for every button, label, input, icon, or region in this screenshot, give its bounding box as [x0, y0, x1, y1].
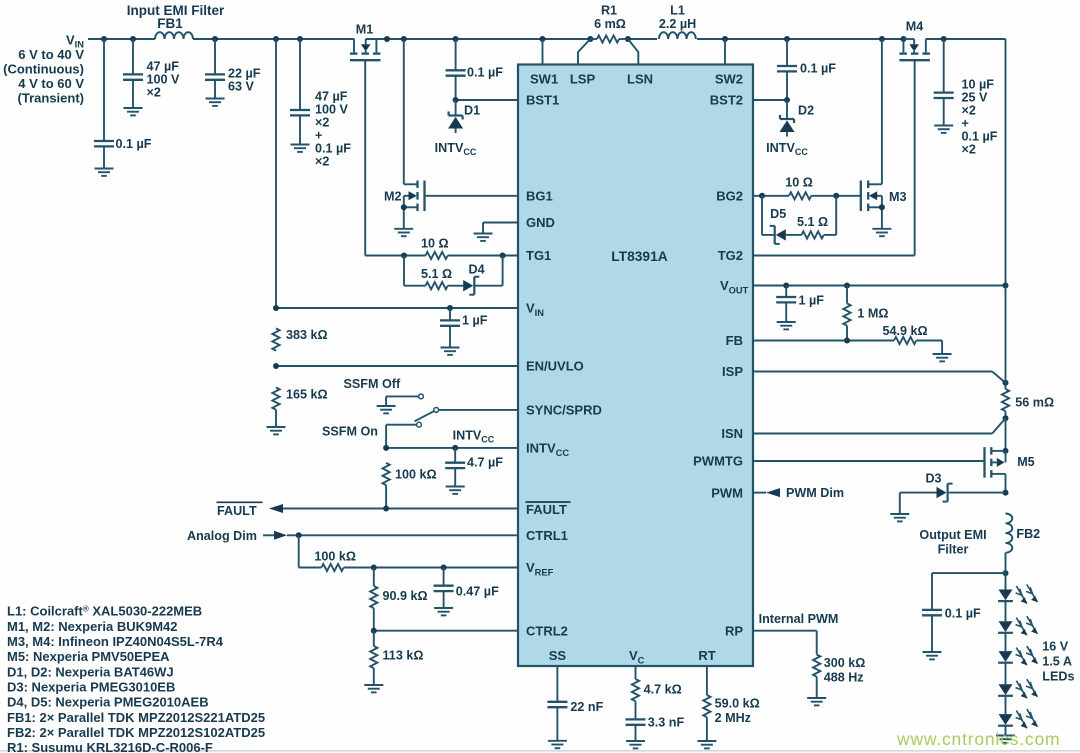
svg-text:GND: GND [526, 215, 555, 230]
svg-text:SSFM Off: SSFM Off [344, 377, 401, 391]
svg-text:Analog Dim: Analog Dim [187, 529, 257, 543]
svg-text:(Transient): (Transient) [18, 90, 84, 105]
svg-text:10 Ω: 10 Ω [785, 176, 813, 190]
svg-text:www.cntronics.com: www.cntronics.com [896, 729, 1060, 749]
svg-text:16 V: 16 V [1042, 640, 1069, 654]
svg-text:L1: Coilcraft® XAL5030-222MEB: L1: Coilcraft® XAL5030-222MEB [7, 604, 202, 619]
svg-text:25 V: 25 V [962, 91, 989, 105]
svg-text:SSFM On: SSFM On [322, 425, 378, 439]
svg-text:LSN: LSN [627, 72, 653, 87]
svg-text:M3: M3 [889, 190, 907, 204]
svg-text:47 µF: 47 µF [147, 60, 180, 74]
svg-text:D1: D1 [464, 104, 480, 118]
svg-text:×2: ×2 [962, 104, 976, 118]
svg-text:M5: Nexperia PMV50EPEA: M5: Nexperia PMV50EPEA [7, 649, 170, 664]
svg-text:FB1: 2× Parallel TDK MPZ2012S2: FB1: 2× Parallel TDK MPZ2012S221ATD25 [7, 710, 265, 725]
svg-text:3.3 nF: 3.3 nF [648, 716, 685, 730]
svg-text:383 kΩ: 383 kΩ [286, 328, 328, 342]
svg-text:PWM: PWM [711, 485, 743, 500]
svg-text:FAULT: FAULT [217, 504, 257, 518]
svg-text:ISN: ISN [721, 426, 743, 441]
svg-text:M5: M5 [1017, 455, 1034, 469]
svg-text:488 Hz: 488 Hz [824, 671, 864, 685]
svg-text:BST2: BST2 [710, 93, 743, 108]
svg-text:PWMTG: PWMTG [693, 454, 743, 469]
svg-text:M2: M2 [384, 189, 402, 203]
svg-text:SW2: SW2 [715, 72, 743, 87]
svg-text:M4: M4 [906, 20, 924, 34]
svg-text:165 kΩ: 165 kΩ [286, 388, 328, 402]
svg-text:D4, D5: Nexperia PMEG2010AEB: D4, D5: Nexperia PMEG2010AEB [7, 695, 209, 710]
svg-text:0.1 µF: 0.1 µF [945, 607, 981, 621]
svg-text:10 Ω: 10 Ω [421, 237, 449, 251]
svg-text:100 kΩ: 100 kΩ [314, 550, 356, 564]
svg-text:SS: SS [549, 648, 567, 663]
svg-text:D3: D3 [925, 472, 941, 486]
svg-text:D2: D2 [798, 104, 814, 118]
svg-text:1 MΩ: 1 MΩ [857, 307, 888, 321]
svg-text:+: + [962, 117, 969, 131]
svg-text:LT8391A: LT8391A [611, 249, 668, 264]
svg-text:6 mΩ: 6 mΩ [594, 17, 626, 31]
svg-text:CTRL2: CTRL2 [526, 623, 568, 638]
svg-text:59.0 kΩ: 59.0 kΩ [715, 697, 760, 711]
svg-text:2.2 µH: 2.2 µH [659, 17, 696, 31]
svg-text:D3: Nexperia PMEG3010EB: D3: Nexperia PMEG3010EB [7, 680, 175, 695]
svg-text:SYNC/SPRD: SYNC/SPRD [526, 403, 602, 418]
svg-text:LSP: LSP [570, 72, 596, 87]
svg-text:TG2: TG2 [718, 248, 743, 263]
svg-text:FAULT: FAULT [526, 502, 567, 517]
svg-text:22 nF: 22 nF [570, 700, 603, 714]
svg-text:+: + [315, 129, 322, 143]
svg-text:113 kΩ: 113 kΩ [383, 649, 424, 663]
svg-text:6 V to 40 V: 6 V to 40 V [18, 47, 84, 62]
svg-text:Output EMI: Output EMI [919, 528, 986, 542]
svg-text:D4: D4 [469, 263, 485, 277]
svg-text:×2: ×2 [315, 155, 329, 169]
svg-text:1.5 A: 1.5 A [1042, 655, 1072, 669]
svg-text:54.9 kΩ: 54.9 kΩ [883, 324, 928, 338]
svg-text:63 V: 63 V [228, 80, 255, 94]
svg-text:47 µF: 47 µF [315, 90, 348, 104]
svg-text:4 V to 60 V: 4 V to 60 V [18, 76, 84, 91]
svg-text:BG1: BG1 [526, 189, 553, 204]
svg-text:RT: RT [698, 648, 715, 663]
svg-text:2 MHz: 2 MHz [715, 711, 751, 725]
svg-text:100 kΩ: 100 kΩ [395, 468, 437, 482]
svg-text:×2: ×2 [962, 143, 976, 157]
svg-text:90.9 kΩ: 90.9 kΩ [383, 589, 428, 603]
svg-text:0.1 µF: 0.1 µF [315, 142, 351, 156]
svg-text:100 V: 100 V [147, 73, 181, 87]
svg-text:R1: R1 [601, 4, 617, 18]
svg-text:5.1 Ω: 5.1 Ω [421, 267, 452, 281]
svg-text:M1, M2: Nexperia BUK9M42: M1, M2: Nexperia BUK9M42 [7, 619, 178, 634]
svg-text:FB: FB [726, 333, 743, 348]
svg-text:FB2: FB2 [1016, 527, 1040, 541]
svg-text:BG2: BG2 [716, 189, 743, 204]
svg-text:Filter: Filter [938, 543, 969, 557]
svg-text:LEDs: LEDs [1042, 670, 1074, 684]
svg-text:CTRL1: CTRL1 [526, 528, 568, 543]
svg-text:4.7 µF: 4.7 µF [467, 456, 503, 470]
svg-text:Internal PWM: Internal PWM [759, 612, 839, 626]
svg-text:4.7 kΩ: 4.7 kΩ [644, 683, 682, 697]
svg-text:D5: D5 [770, 207, 786, 221]
svg-text:0.47 µF: 0.47 µF [456, 585, 499, 599]
svg-text:RP: RP [725, 623, 743, 638]
svg-text:56 mΩ: 56 mΩ [1015, 395, 1054, 409]
svg-text:FB2: 2× Parallel TDK MPZ2012S1: FB2: 2× Parallel TDK MPZ2012S102ATD25 [7, 725, 265, 740]
svg-text:L1: L1 [670, 4, 685, 18]
svg-text:0.1 µF: 0.1 µF [962, 130, 998, 144]
svg-text:5.1 Ω: 5.1 Ω [797, 215, 828, 229]
svg-text:FB1: FB1 [157, 16, 183, 31]
svg-text:M3, M4: Infineon IPZ40N04S5L-7: M3, M4: Infineon IPZ40N04S5L-7R4 [7, 634, 224, 649]
svg-text:SW1: SW1 [530, 72, 558, 87]
svg-text:0.1 µF: 0.1 µF [800, 62, 836, 76]
svg-text:0.1 µF: 0.1 µF [116, 137, 152, 151]
svg-text:0.1 µF: 0.1 µF [467, 66, 503, 80]
svg-text:100 V: 100 V [315, 103, 349, 117]
svg-text:R1: Susumu KRL3216D-C-R006-F: R1: Susumu KRL3216D-C-R006-F [7, 740, 213, 753]
svg-text:BST1: BST1 [526, 93, 559, 108]
svg-text:10 µF: 10 µF [962, 78, 995, 92]
svg-text:M1: M1 [356, 23, 374, 37]
svg-text:(Continuous): (Continuous) [3, 61, 84, 76]
svg-text:300 kΩ: 300 kΩ [824, 656, 866, 670]
svg-text:×2: ×2 [315, 116, 329, 130]
svg-text:TG1: TG1 [526, 248, 551, 263]
svg-text:EN/UVLO: EN/UVLO [526, 359, 584, 374]
svg-text:1 µF: 1 µF [799, 294, 825, 308]
svg-text:ISP: ISP [722, 364, 743, 379]
svg-text:22 µF: 22 µF [228, 67, 261, 81]
svg-text:D1, D2: Nexperia BAT46WJ: D1, D2: Nexperia BAT46WJ [7, 664, 174, 679]
svg-text:1 µF: 1 µF [462, 314, 488, 328]
svg-text:PWM Dim: PWM Dim [786, 486, 844, 500]
svg-text:×2: ×2 [147, 86, 161, 100]
